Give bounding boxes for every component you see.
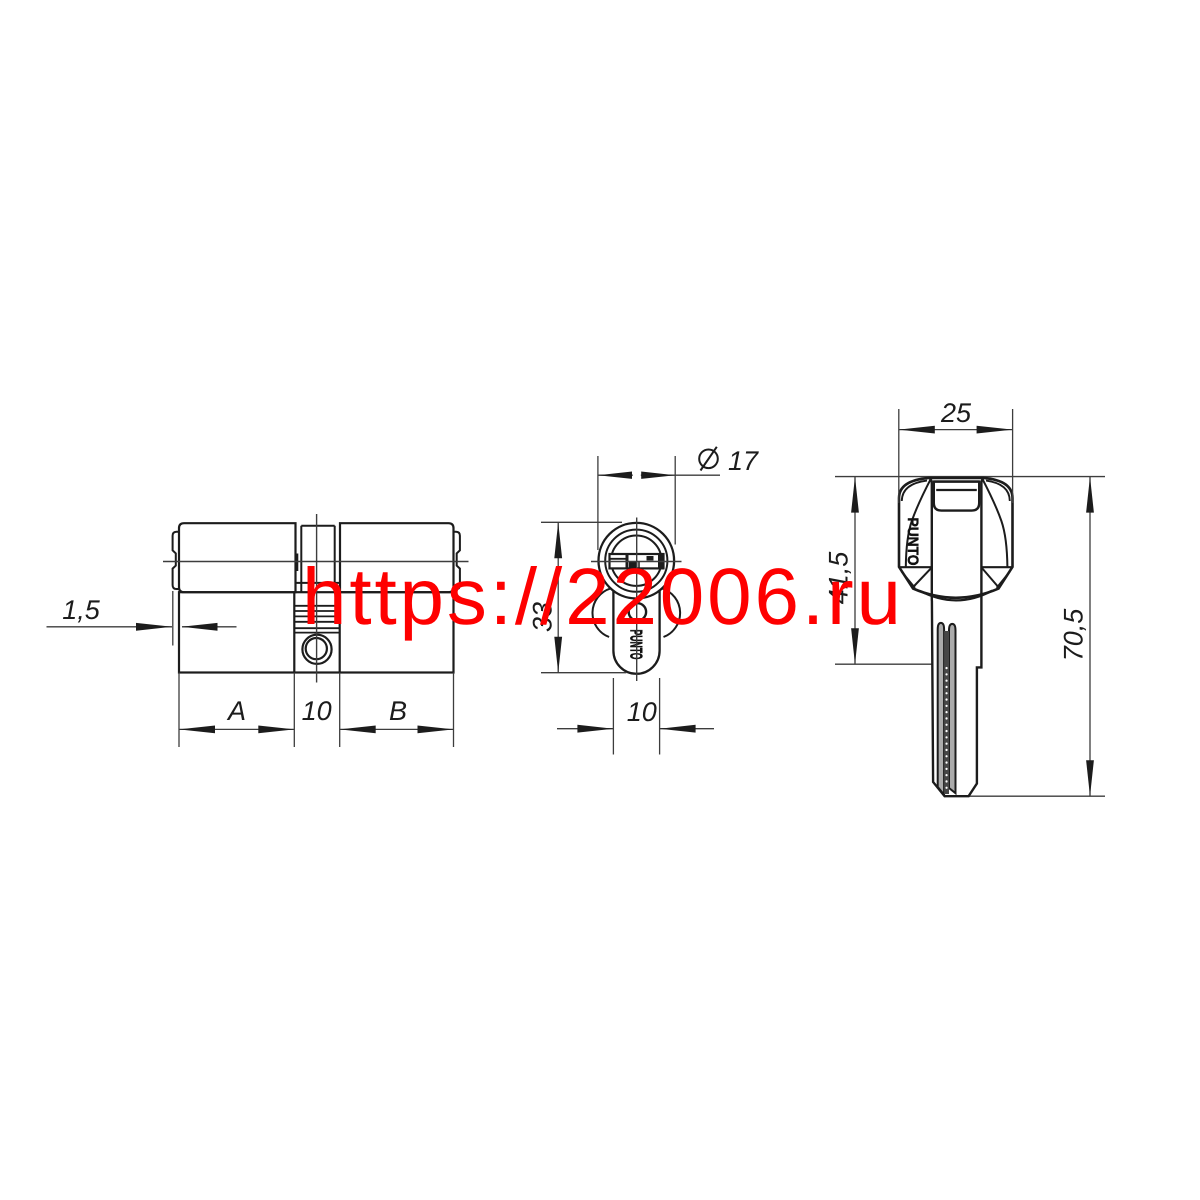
svg-text:17: 17 (728, 446, 759, 476)
svg-text:1,5: 1,5 (62, 595, 101, 625)
svg-text:https://22006.ru: https://22006.ru (302, 552, 901, 641)
svg-text:70,5: 70,5 (1059, 608, 1089, 662)
svg-text:10: 10 (302, 696, 332, 726)
svg-text:B: B (389, 696, 407, 726)
svg-text:25: 25 (940, 398, 972, 428)
svg-text:A: A (226, 696, 246, 726)
svg-text:10: 10 (627, 697, 657, 727)
svg-text:PUNTO: PUNTO (904, 518, 921, 566)
